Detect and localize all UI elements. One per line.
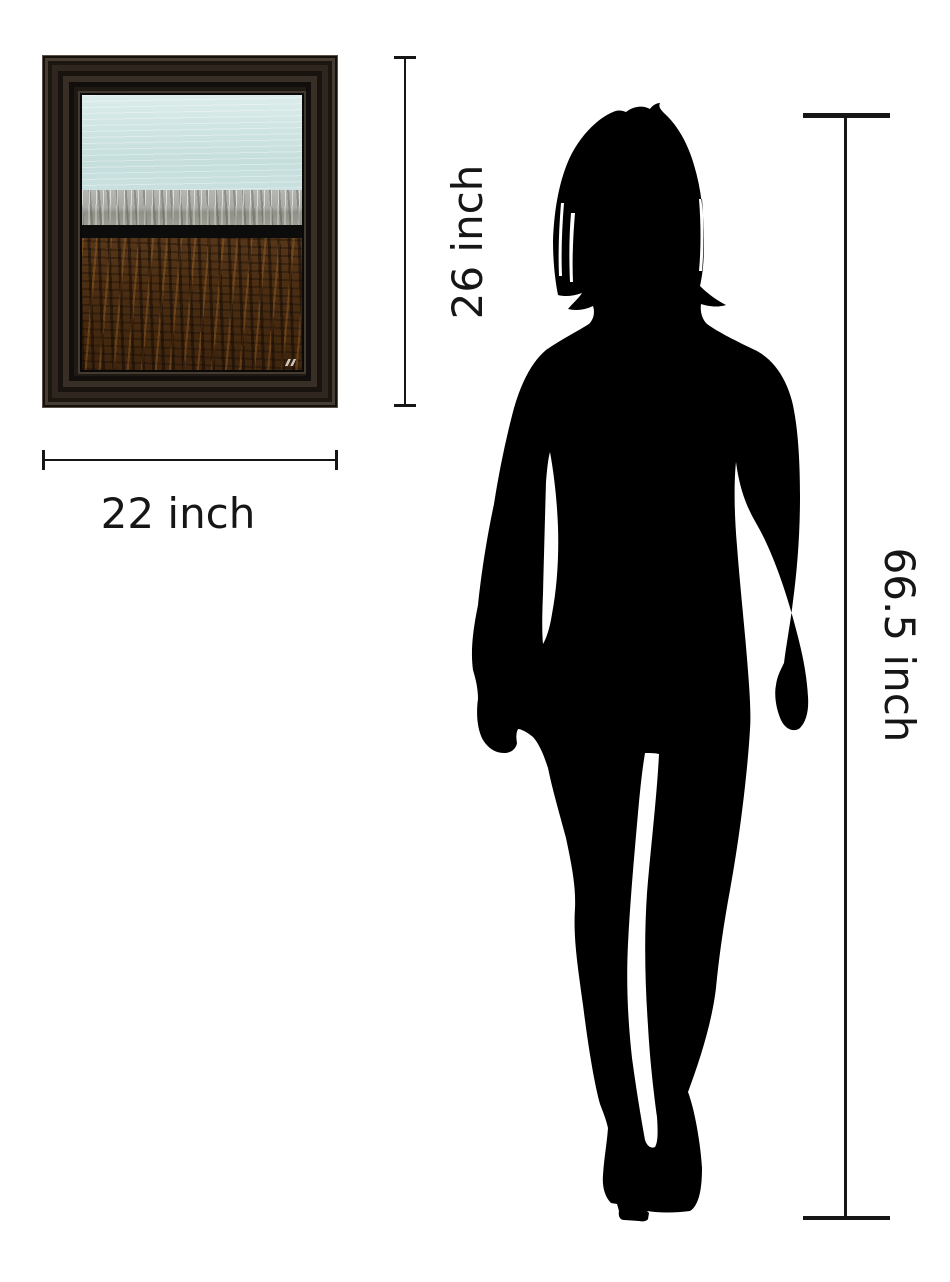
- female-silhouette: [0, 0, 950, 1282]
- size-comparison-canvas: 26 inch 22 inch 66.5 inch: [0, 0, 950, 1282]
- female-silhouette-shape: [472, 103, 808, 1221]
- figure-height-bottom-cap: [803, 1216, 890, 1220]
- figure-height-top-cap: [803, 113, 890, 118]
- figure-height-label: 66.5 inch: [878, 548, 920, 743]
- figure-height-dimension-line: [844, 115, 847, 1219]
